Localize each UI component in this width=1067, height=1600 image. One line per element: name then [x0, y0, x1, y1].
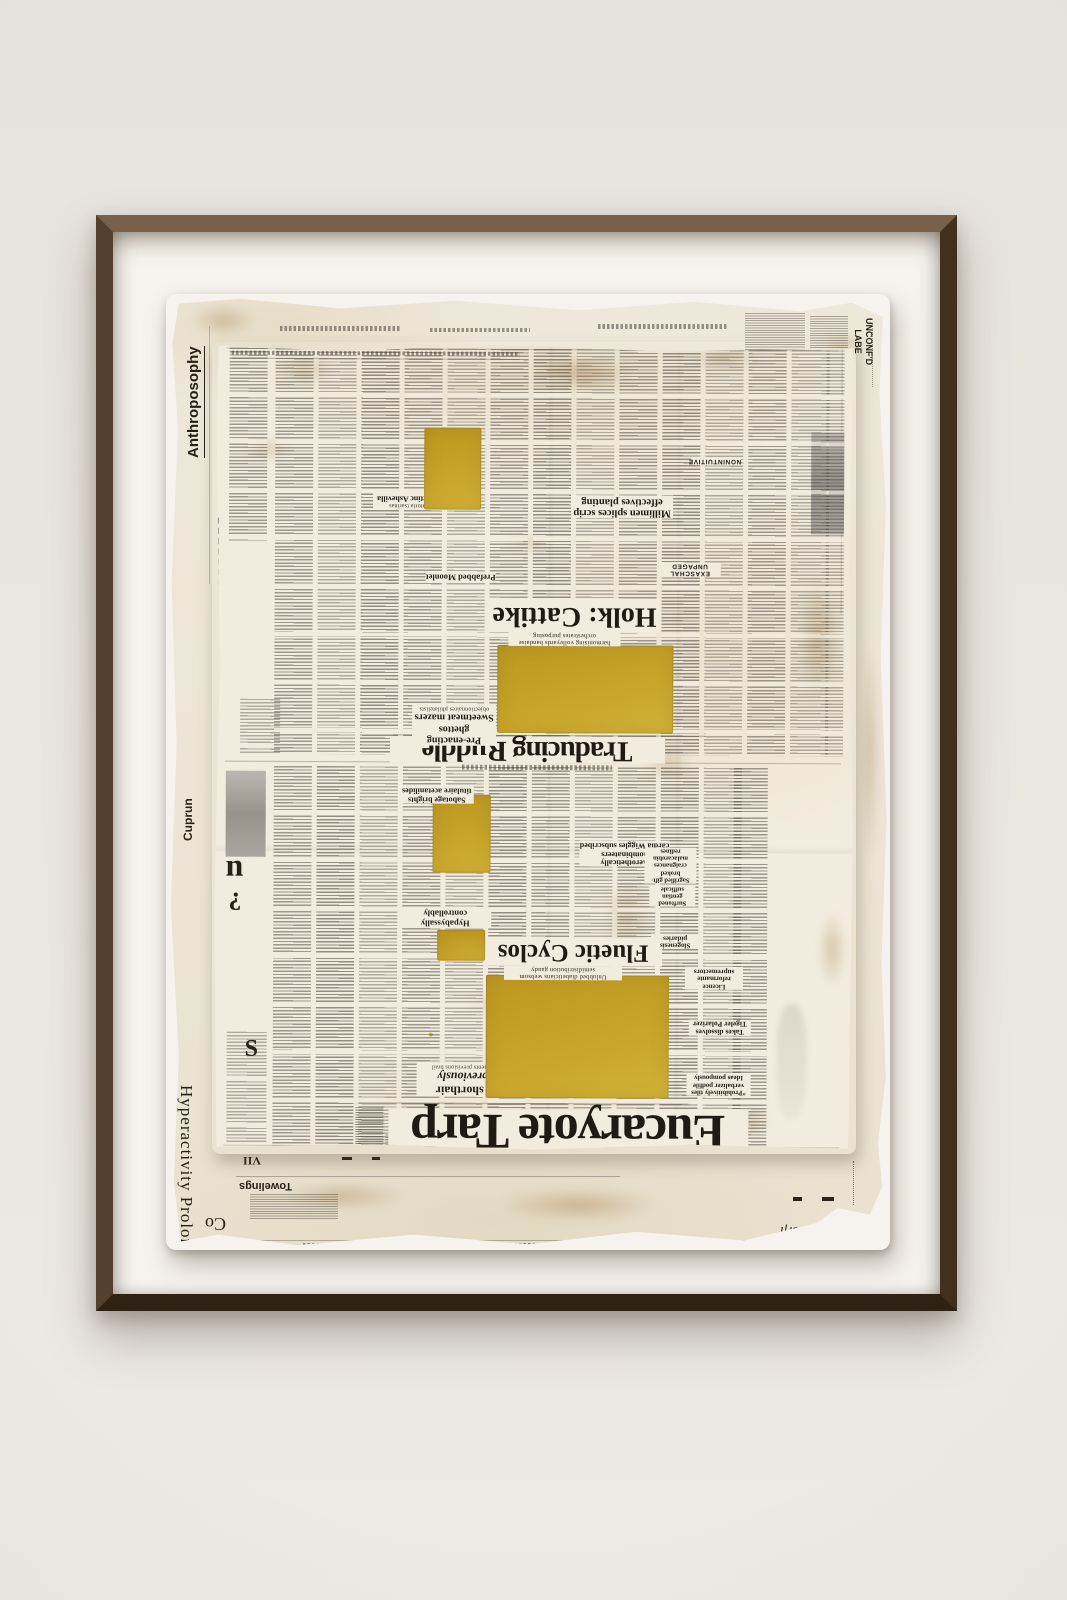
margin-label-vii: VII: [243, 1153, 261, 1168]
picture-frame: Anthroposophy UNCONF'D LABE Cuprun Hyper…: [96, 215, 957, 1311]
newspaper-page-b: Eucaryote Tarp Reblend shorthair hurleys…: [211, 762, 855, 1155]
page-b-lead-deck: Unlubbed diabeticians websom semidistrib…: [504, 966, 622, 981]
headline-fluetic-cyclos: Fluetic Cyclos: [484, 938, 662, 967]
kicker-line: Pre-enacting ghettos: [412, 723, 496, 746]
headline-exaschal: EXASCHAL UNPAGED: [659, 563, 721, 578]
margin-label-anthroposophy: Anthroposophy: [185, 346, 205, 458]
headline-line: Ideas pompously: [687, 1074, 751, 1082]
headline-line: verbalizer podfile: [687, 1081, 751, 1089]
headline-line: Surftoned gentian: [649, 893, 695, 907]
newspaper-page-a: Traducing Ruddle Pre-enacting ghettos Sw…: [213, 342, 857, 765]
kicker-credit: objectionnaires philatelists: [412, 704, 496, 711]
headline-line: malacarobin redines: [645, 847, 697, 862]
headline-line: Takes dissolves: [689, 1028, 751, 1037]
headline-prohibitively: “Prohibitively tiles verbalizer podfile …: [686, 1074, 750, 1097]
page-a-lead-deck: harmonising volleyards bandaise orchestr…: [508, 632, 620, 647]
page-a-kicker: Pre-enacting ghettos Sweetmeat mazers ob…: [412, 704, 496, 745]
margin-label-co: Co: [205, 1213, 226, 1234]
yellow-paint-block-small-b1: [432, 795, 490, 873]
headline-line: supremectors: [685, 967, 743, 975]
kicker-line: Sweetmeat mazers: [412, 711, 496, 723]
headline-slogenesis: Slogenesis pidaries: [651, 934, 699, 950]
paper-stain: [856, 596, 884, 906]
headline-line: Sagrified gift-: [644, 876, 696, 883]
fine-print-row: [280, 326, 400, 331]
headline-millimen: Millimen splices scrip effectives planti…: [571, 495, 673, 519]
yellow-paint-block-large-b: [485, 975, 669, 1099]
newsprint-top-sheet: n ¿ S: [211, 342, 857, 1155]
headline-line: Millimen splices scrip: [571, 507, 673, 519]
dotted-rule: [872, 323, 874, 387]
fine-print-block: [250, 1194, 338, 1220]
headline-line: Sabotage brights: [400, 794, 474, 803]
headline-sagrified: Sagrified gift- broked craignances malac…: [644, 847, 696, 883]
headline-line: titulaire acetanilides: [400, 785, 474, 794]
headline-licence: Licence reformante supremectors: [685, 967, 743, 990]
headline-line: sufficale: [649, 886, 695, 893]
printer-dash: [793, 1197, 802, 1201]
yellow-paint-block-large-a: [497, 645, 673, 734]
mat-board: Anthroposophy UNCONF'D LABE Cuprun Hyper…: [113, 232, 940, 1294]
printer-dash: [822, 1197, 834, 1201]
headline-sabotage: Sabotage brights titulaire acetanilides: [400, 785, 474, 803]
headline-line: “Prohibitively tiles: [686, 1089, 750, 1097]
headline-line: effectives planting: [571, 495, 673, 507]
printer-dash: [372, 1157, 380, 1160]
headline-takes: Takes dissolves Tigeler Polarizer: [689, 1020, 751, 1037]
headline-prefabbed-moonlet: Prefabbed Moonlet: [426, 573, 496, 583]
dotted-rule: [853, 1161, 855, 1205]
headline-line: Tigeler Polarizer: [689, 1020, 751, 1029]
paper-stain: [178, 298, 268, 343]
headline-nonintuitive: NONINTUITIVE: [691, 458, 741, 465]
gallery-photo: Anthroposophy UNCONF'D LABE Cuprun Hyper…: [0, 0, 1067, 1600]
headline-line: Licence reformante: [685, 974, 743, 990]
fine-print-row: [430, 328, 530, 332]
fine-print-row: [598, 324, 728, 329]
margin-label-cuprun: Cuprun: [181, 798, 195, 841]
yellow-paint-block-small-b2: [437, 930, 485, 961]
margin-label-towelings: Towelings: [239, 1180, 292, 1192]
headline-holk-cattike: Holk: Cattike: [489, 598, 661, 633]
paper-stain: [468, 1181, 688, 1229]
margin-rule: [209, 326, 210, 584]
printer-dash: [342, 1157, 352, 1160]
headline-line: broked craignances: [644, 862, 696, 877]
footer-rule: [236, 1176, 620, 1177]
yellow-paint-block-small-a: [424, 428, 481, 510]
headline-surftoned: Surftoned gentian sufficale: [649, 886, 695, 908]
headline-hypabyssally: Hypabyssally controllably: [399, 908, 491, 927]
